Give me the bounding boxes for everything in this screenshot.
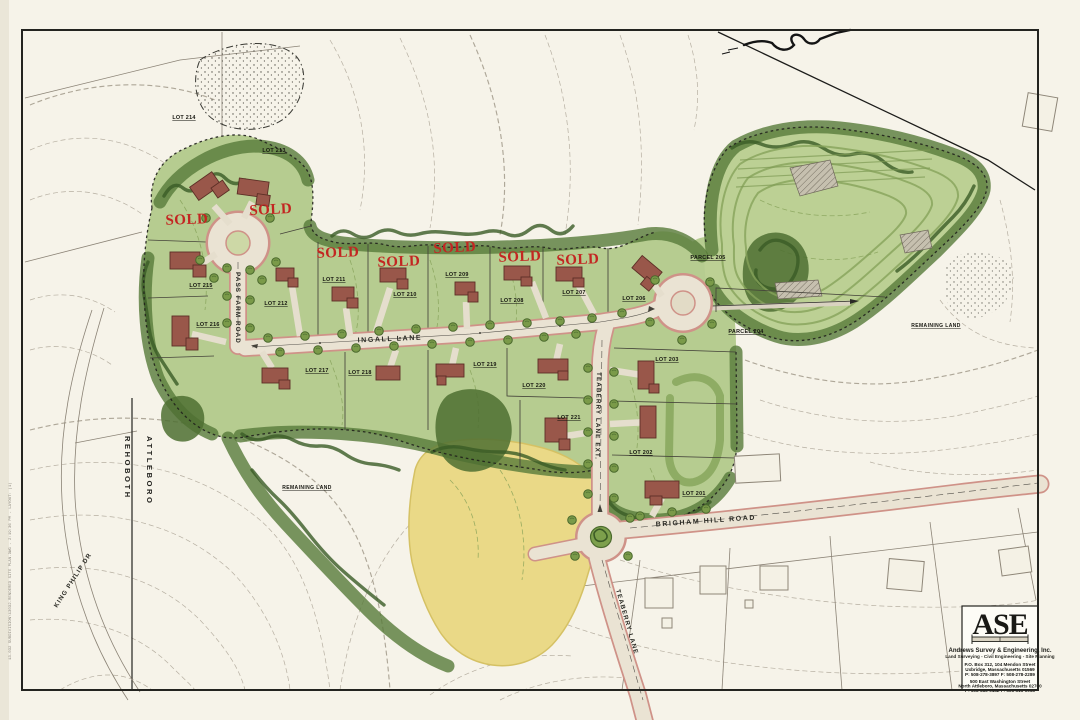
sold-stamp: SOLD xyxy=(316,244,359,261)
lot-label-215: LOT 215 xyxy=(189,283,212,289)
lot-label-208: LOT 208 xyxy=(500,298,523,304)
remaining-land-label-west: REMAINING LAND xyxy=(282,485,332,491)
lot-label-216: LOT 216 xyxy=(196,322,219,328)
company-logo: ASE xyxy=(972,608,1027,641)
town-label-attleboro: ATTLEBORO xyxy=(145,436,154,506)
lot-label-219: LOT 219 xyxy=(473,362,496,368)
lot-label-212: LOT 212 xyxy=(264,301,287,307)
lot-label-203: LOT 203 xyxy=(655,357,678,363)
lot-label-218: LOT 218 xyxy=(348,370,371,376)
paper-edge xyxy=(0,0,9,720)
lot-label-214: LOT 214 xyxy=(172,115,195,121)
sold-stamp: SOLD xyxy=(433,239,477,257)
parcel-label-205: PARCEL 205 xyxy=(690,255,725,261)
sold-stamp: SOLD xyxy=(249,201,293,219)
plot-stamp: 13-032 SUBDIVISION\13032-RENDERED SITE P… xyxy=(8,482,13,660)
plan-sheet: 13-032 SUBDIVISION\13032-RENDERED SITE P… xyxy=(0,0,1080,720)
lot-label-217: LOT 217 xyxy=(305,368,328,374)
remaining-land-label-east: REMAINING LAND xyxy=(911,323,961,329)
sold-stamp: SOLD xyxy=(498,248,541,265)
lot-label-202: LOT 202 xyxy=(629,450,652,456)
sold-stamp: SOLD xyxy=(556,251,599,268)
office1-line3: P: 508-278-3897 F: 508-278-2289 xyxy=(965,672,1035,677)
rendered-site-plan: 13-032 SUBDIVISION\13032-RENDERED SITE P… xyxy=(0,0,1080,720)
town-label-rehoboth: REHOBOTH xyxy=(123,436,132,500)
sold-stamp: SOLD xyxy=(165,211,208,228)
lot-label-207: LOT 207 xyxy=(562,290,585,296)
lot-label-220: LOT 220 xyxy=(522,383,545,389)
lot-label-213: LOT 213 xyxy=(262,148,285,154)
lot-label-211: LOT 211 xyxy=(322,277,345,283)
sold-stamp: SOLD xyxy=(377,253,420,270)
lot-label-209: LOT 209 xyxy=(445,272,468,278)
parcel-label-204: PARCEL 204 xyxy=(728,329,763,335)
lot-label-201: LOT 201 xyxy=(682,491,705,497)
lot-label-206: LOT 206 xyxy=(622,296,645,302)
road-label-pass-farm: PASS FARM ROAD xyxy=(234,272,241,344)
lot-label-221: LOT 221 xyxy=(557,415,580,421)
lot-label-210: LOT 210 xyxy=(393,292,416,298)
